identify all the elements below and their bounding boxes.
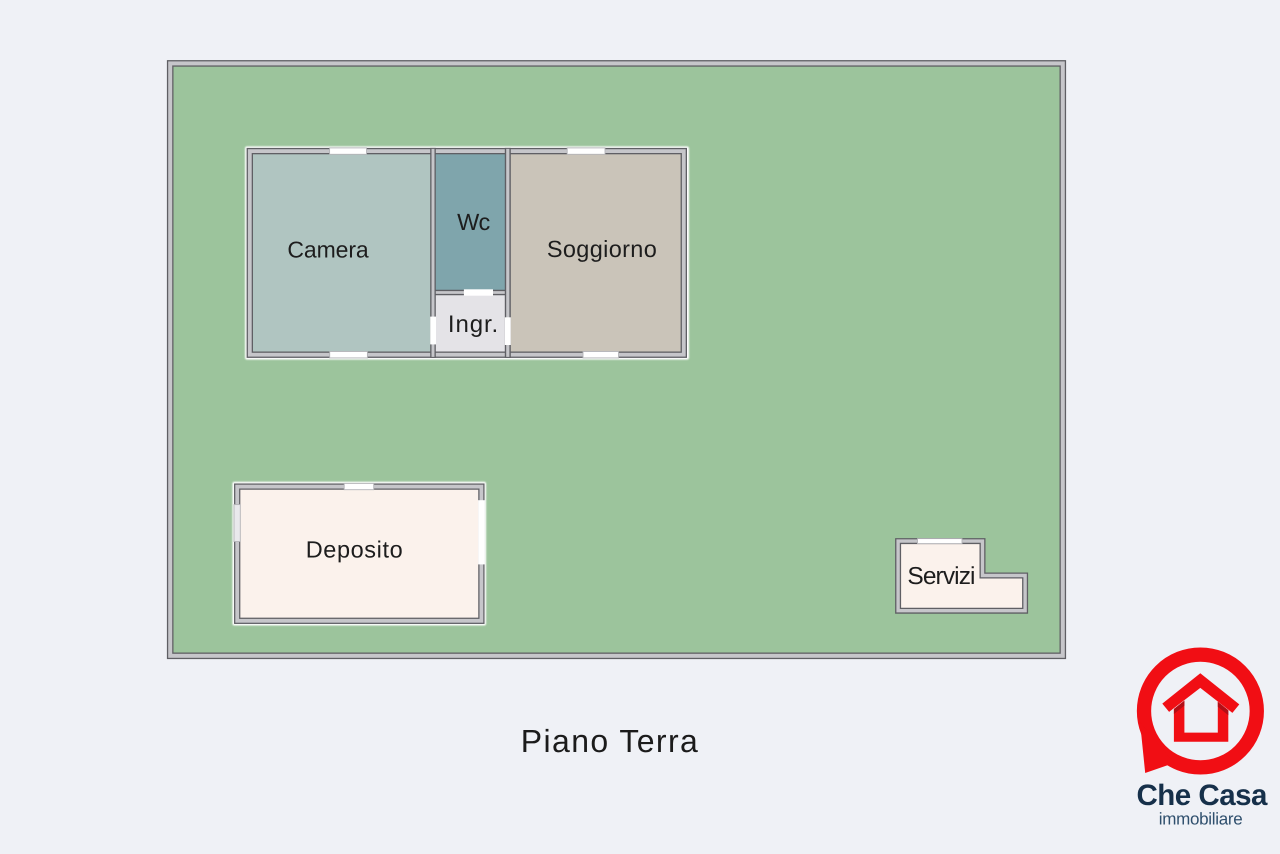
svg-text:immobiliare: immobiliare	[1159, 809, 1243, 828]
svg-text:Ingr.: Ingr.	[448, 311, 499, 338]
svg-text:Servizi: Servizi	[907, 563, 974, 590]
svg-text:Piano Terra: Piano Terra	[521, 723, 699, 759]
svg-text:Soggiorno: Soggiorno	[547, 236, 657, 262]
svg-text:Camera: Camera	[287, 236, 369, 262]
svg-text:Deposito: Deposito	[306, 537, 404, 563]
svg-text:Wc: Wc	[457, 209, 490, 235]
svg-text:Che Casa: Che Casa	[1136, 779, 1268, 812]
